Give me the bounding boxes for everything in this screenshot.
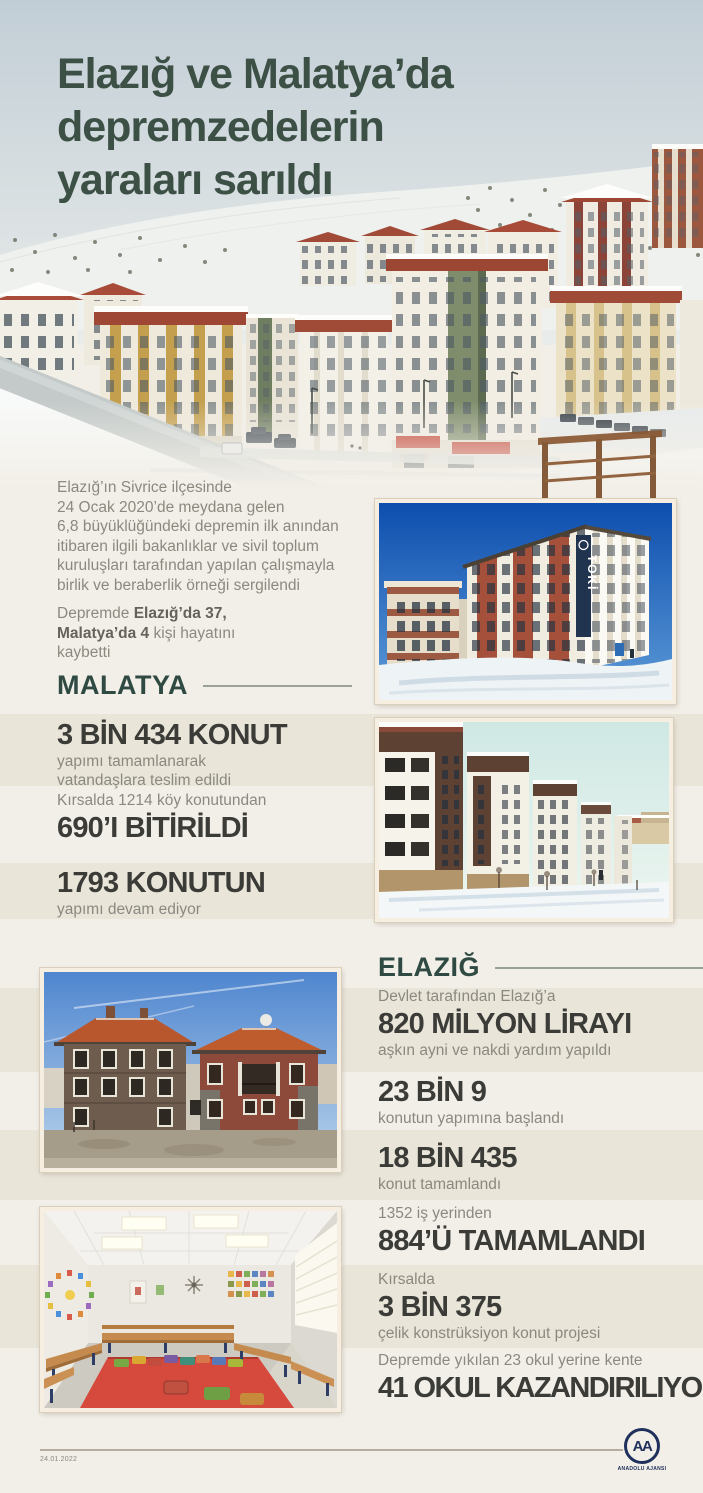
stat-value: 23 BİN 9	[378, 1077, 564, 1108]
stat-block: 1352 iş yerinden 884’Ü TAMAMLANDI	[378, 1205, 645, 1257]
heading-rule	[203, 685, 352, 687]
infographic-page: Elazığ ve Malatya’da depremzedelerin yar…	[0, 0, 703, 1493]
stat-pre: Depremde yıkılan 23 okul yerine kente	[378, 1352, 703, 1371]
stat-block: Depremde yıkılan 23 okul yerine kente 41…	[378, 1352, 703, 1404]
heading-rule	[495, 967, 703, 969]
footer-divider	[40, 1449, 623, 1451]
stat-value: 18 BİN 435	[378, 1143, 517, 1174]
photo-village-houses	[40, 968, 341, 1172]
stat-pre: Devlet tarafından Elazığ’a	[378, 988, 631, 1007]
stat-block: 1793 KONUTUN yapımı devam ediyor	[57, 868, 265, 920]
intro-paragraph: Elazığ’ın Sivrice ilçesinde 24 Ocak 2020…	[57, 478, 387, 595]
stat-sub: konut tamamlandı	[378, 1176, 517, 1195]
aa-logo: AA ANADOLU AJANSI	[606, 1428, 678, 1472]
photo-classroom	[40, 1207, 341, 1412]
stat-sub: konutun yapımına başlandı	[378, 1110, 564, 1129]
stat-value: 1793 KONUTUN	[57, 868, 265, 899]
stat-pre: Kırsalda	[378, 1271, 600, 1290]
footer-date: 24.01.2022	[40, 1456, 77, 1463]
section-heading-malatya: MALATYA	[57, 670, 352, 701]
stat-block: Kırsalda 3 BİN 375 çelik konstrüksiyon k…	[378, 1271, 600, 1343]
stat-sub: yapımı devam ediyor	[57, 901, 265, 920]
stat-value: 884’Ü TAMAMLANDI	[378, 1226, 645, 1257]
stat-block: 3 BİN 434 KONUT yapımı tamamlanarak vata…	[57, 720, 287, 790]
aa-agency-name: ANADOLU AJANSI	[606, 1466, 678, 1472]
section-heading-elazig: ELAZIĞ	[378, 952, 703, 983]
stat-pre: 1352 iş yerinden	[378, 1205, 645, 1224]
stat-sub: yapımı tamamlanarak vatandaşlara teslim …	[57, 753, 287, 790]
stat-value: 41 OKUL KAZANDIRILIYOR	[378, 1373, 703, 1404]
photo-snowy-street	[375, 718, 673, 922]
stat-value: 3 BİN 375	[378, 1292, 600, 1323]
aa-logo-text: AA	[633, 1438, 652, 1455]
stat-sub: çelik konstrüksiyon konut projesi	[378, 1325, 600, 1344]
stat-block: 23 BİN 9 konutun yapımına başlandı	[378, 1077, 564, 1129]
stat-pre: Kırsalda 1214 köy konutundan	[57, 792, 266, 811]
stat-block: Kırsalda 1214 köy konutundan 690’I BİTİR…	[57, 792, 266, 844]
stat-value: 3 BİN 434 KONUT	[57, 720, 287, 751]
photo-toki-building: TOKİ	[375, 499, 676, 704]
stat-block: 18 BİN 435 konut tamamlandı	[378, 1143, 517, 1195]
stat-block: Devlet tarafından Elazığ’a 820 MİLYON Lİ…	[378, 988, 631, 1060]
section-heading-label: ELAZIĞ	[378, 952, 480, 983]
toki-sign-text: TOKİ	[585, 555, 600, 591]
aa-logo-circle: AA	[624, 1428, 660, 1464]
stat-value: 690’I BİTİRİLDİ	[57, 813, 266, 844]
casualties-text: Depremde Elazığ’da 37,Malatya’da 4 kişi …	[57, 604, 357, 663]
section-heading-label: MALATYA	[57, 670, 188, 701]
page-title: Elazığ ve Malatya’da depremzedelerin yar…	[57, 48, 637, 207]
stat-value: 820 MİLYON LİRAYI	[378, 1009, 631, 1040]
stat-sub: aşkın ayni ve nakdi yardım yapıldı	[378, 1042, 631, 1061]
